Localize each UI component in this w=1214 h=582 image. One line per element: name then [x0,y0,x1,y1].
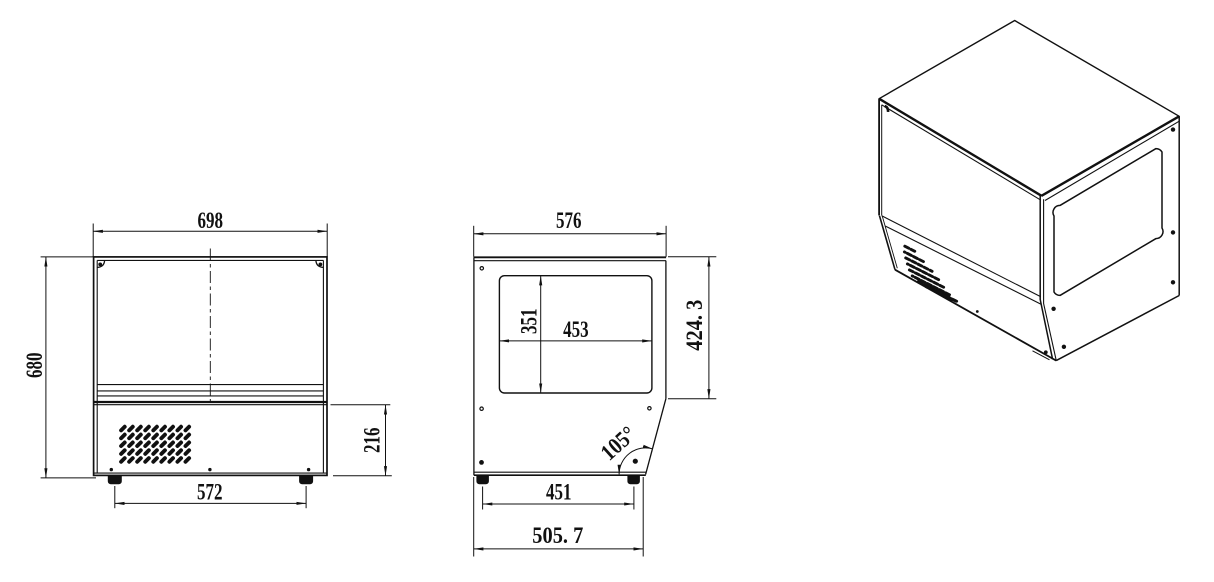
svg-text:576: 576 [556,208,582,233]
svg-text:424. 3: 424. 3 [682,300,707,351]
svg-text:451: 451 [546,479,572,504]
svg-text:572: 572 [197,480,223,505]
svg-text:680: 680 [22,353,47,379]
svg-text:505. 7: 505. 7 [532,523,583,548]
svg-text:216: 216 [359,427,384,453]
svg-text:351: 351 [517,309,542,335]
svg-text:453: 453 [563,317,589,342]
svg-text:698: 698 [197,208,223,233]
